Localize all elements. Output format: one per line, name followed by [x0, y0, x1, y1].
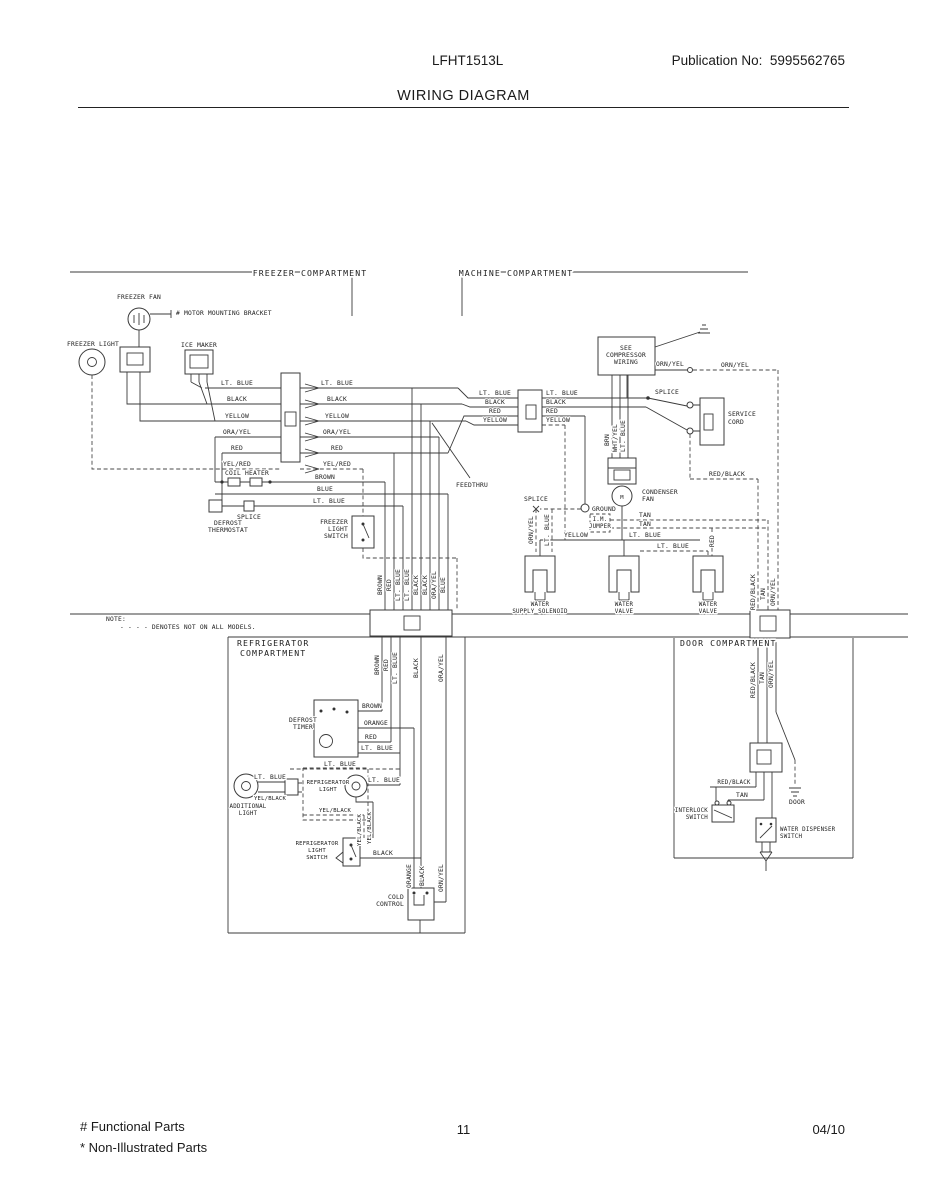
- diagram-label: RED/BLACK: [717, 780, 751, 786]
- door-feedthru-connector: [750, 610, 790, 638]
- diagram-label: DEFROST: [289, 717, 317, 724]
- diagram-label: LT. BLUE: [368, 777, 400, 784]
- diagram-label: DEFROST: [214, 520, 242, 527]
- diagram-label: ORN/YEL: [721, 362, 749, 369]
- diagram-label: ORANGE: [364, 720, 388, 727]
- diagram-label: BLACK: [373, 850, 393, 857]
- diagram-label: WATER: [615, 602, 634, 608]
- diagram-label: LT. BLUE: [392, 652, 399, 684]
- diagram-label: LT. BLUE: [361, 745, 393, 752]
- wiring-diagram: FREEZER COMPARTMENTMACHINE COMPARTMENTRE…: [0, 0, 927, 1200]
- diagram-label: BLACK: [422, 575, 429, 595]
- diagram-label: CORD: [728, 419, 744, 426]
- diagram-label: YEL/BLACK: [319, 808, 352, 814]
- interlock-switch-symbol: [712, 805, 734, 822]
- diagram-label: RED/BLACK: [709, 471, 745, 478]
- diagram-label: SUPPLY SOLENOID: [512, 609, 568, 615]
- diagram-label: LT. BLUE: [395, 569, 402, 601]
- light-connector: [285, 779, 298, 795]
- diagram-label: FREEZER: [320, 519, 348, 526]
- diagram-label: SERVICE: [728, 411, 756, 418]
- diagram-label: YELLOW: [483, 417, 507, 424]
- diagram-label: LIGHT: [319, 787, 337, 793]
- diagram-label: TAN: [759, 672, 766, 684]
- water-supply-solenoid-symbol: [525, 556, 555, 592]
- diagram-label: # MOTOR MOUNTING BRACKET: [176, 310, 272, 317]
- diagram-label: FREEZER LIGHT: [67, 341, 119, 348]
- diagram-label: ORN/YEL: [656, 361, 684, 368]
- diagram-label: LT. BLUE: [479, 390, 511, 397]
- diagram-label: RED/BLACK: [750, 662, 757, 698]
- diagram-label: LT. BLUE: [324, 761, 356, 768]
- diagram-label: ORA/YEL: [431, 571, 438, 599]
- diagram-label: DOOR: [789, 799, 805, 806]
- fan-connector-box: [120, 347, 150, 372]
- freezer-light-symbol: [79, 349, 105, 375]
- diagram-label: LIGHT: [328, 526, 348, 533]
- diagram-label: BRN: [604, 434, 611, 446]
- diagram-label: MACHINE COMPARTMENT: [459, 268, 574, 278]
- diagram-label: LIGHT: [239, 811, 258, 817]
- diagram-label: BLACK: [413, 575, 420, 595]
- diagram-label: LT. BLUE: [404, 569, 411, 601]
- diagram-label: REFRIGERATOR: [296, 841, 339, 847]
- diagram-label: YELLOW: [564, 532, 588, 539]
- diagram-label: YEL/RED: [323, 461, 351, 468]
- diagram-label: LT. BLUE: [221, 380, 253, 387]
- diagram-label: BLACK: [413, 658, 420, 678]
- diagram-label: SPLICE: [655, 389, 679, 396]
- diagram-label: FREEZER COMPARTMENT: [253, 268, 368, 278]
- diagram-label: COIL HEATER: [225, 470, 269, 477]
- diagram-label: YEL/BLACK: [254, 796, 287, 802]
- diagram-label: RED: [386, 579, 393, 591]
- diagram-label: FREEZER FAN: [117, 294, 161, 301]
- diagram-label: BLACK: [546, 399, 566, 406]
- diagram-label: SWITCH: [780, 834, 802, 840]
- diagram-label: RED: [383, 659, 390, 671]
- diagram-label: VALVE: [615, 609, 634, 615]
- diagram-label: ORA/YEL: [323, 429, 351, 436]
- refrigerator-light-symbol: [345, 775, 367, 797]
- footer-date: 04/10: [812, 1122, 845, 1137]
- diagram-label: THERMOSTAT: [208, 527, 248, 534]
- diagram-label: BLUE: [440, 577, 447, 593]
- diagram-label: ORN/YEL: [770, 578, 777, 606]
- defrost-timer-symbol: [314, 700, 358, 757]
- diagram-label: RED/BLACK: [750, 574, 757, 610]
- diagram-label: INTERLOCK: [675, 808, 709, 814]
- diagram-label: SWITCH: [306, 855, 327, 861]
- diagram-label: BLACK: [485, 399, 505, 406]
- ground-symbol: [581, 504, 589, 512]
- diagram-label: LT. BLUE: [546, 390, 578, 397]
- splice-dot: [646, 396, 650, 400]
- coil-heater-element: [228, 478, 240, 486]
- diagram-label: LT. BLUE: [620, 420, 627, 452]
- diagram-label: BROWN: [362, 703, 382, 710]
- diagram-label: RED: [365, 734, 377, 741]
- diagram-label: M: [620, 495, 624, 501]
- diagram-label: JUMPER: [589, 524, 611, 530]
- door-harness-connector: [750, 743, 782, 772]
- diagram-label: YELLOW: [546, 417, 570, 424]
- diagram-label: TAN: [736, 792, 748, 799]
- water-dispenser-switch-symbol: [756, 818, 776, 842]
- diagram-label: YELLOW: [325, 413, 349, 420]
- defrost-thermostat-symbol: [209, 500, 222, 512]
- diagram-label: BLACK: [419, 866, 426, 886]
- diagram-label: ICE MAKER: [181, 342, 217, 349]
- cold-control-symbol: [408, 888, 434, 920]
- freezer-light-switch-symbol: [352, 516, 374, 548]
- diagram-label: DOOR COMPARTMENT: [680, 638, 776, 648]
- diagram-label: WATER: [531, 602, 550, 608]
- diagram-label: RED: [546, 408, 558, 415]
- cabinet-feedthru-connector: [370, 610, 452, 636]
- diagram-label: BROWN: [374, 655, 381, 675]
- diagram-label: RED: [331, 445, 343, 452]
- manual-page: LFHT1513L Publication No: 5995562765 WIR…: [0, 0, 927, 1200]
- diagram-label: FAN: [642, 496, 654, 503]
- freezer-feedthru-connector: [281, 373, 300, 462]
- diagram-label: VALVE: [699, 609, 718, 615]
- diagram-label: WATER: [699, 602, 718, 608]
- footer-page-number: 11: [0, 1122, 927, 1137]
- diagram-label: COLD: [388, 894, 404, 901]
- diagram-label: SEE: [620, 345, 632, 352]
- diagram-label: TAN: [639, 521, 651, 528]
- diagram-label: YEL/BLACK: [367, 812, 373, 845]
- diagram-label: LT. BLUE: [313, 498, 345, 505]
- diagram-label: SWITCH: [324, 533, 348, 540]
- water-valve-symbol: [693, 556, 723, 592]
- diagram-label: YEL/RED: [223, 461, 251, 468]
- diagram-label: RED: [709, 535, 716, 547]
- diagram-label: WIRING: [614, 359, 638, 366]
- ice-maker-plug: [185, 350, 213, 374]
- diagram-label: BLACK: [227, 396, 247, 403]
- diagram-label: TAN: [639, 512, 651, 519]
- diagram-label: BROWN: [315, 474, 335, 481]
- diagram-label: LT. BLUE: [321, 380, 353, 387]
- diagram-label: COMPARTMENT: [240, 648, 306, 658]
- diagram-label: LT. BLUE: [544, 514, 551, 546]
- coil-heater-element: [250, 478, 262, 486]
- diagram-label: WHT/YEL: [612, 424, 619, 452]
- diagram-label: RED: [489, 408, 501, 415]
- splice-symbol: [244, 501, 254, 511]
- footer-non-illustrated-parts: * Non-Illustrated Parts: [80, 1140, 207, 1155]
- diagram-label: ADDITIONAL: [230, 804, 267, 810]
- diagram-label: YELLOW: [225, 413, 249, 420]
- diagram-label: REFRIGERATOR: [237, 638, 309, 648]
- diagram-label: ORN/YEL: [528, 516, 535, 544]
- diagram-label: RED: [231, 445, 243, 452]
- diagram-label: COMPRESSOR: [606, 352, 646, 359]
- diagram-label: LT. BLUE: [254, 774, 286, 781]
- diagram-label: CONDENSER: [642, 489, 678, 496]
- diagram-label: ORN/YEL: [768, 660, 775, 688]
- diagram-label: LT. BLUE: [657, 543, 689, 550]
- diagram-label: I.M.: [593, 517, 608, 523]
- machine-connector: [518, 390, 542, 432]
- diagram-label: LIGHT: [308, 848, 326, 854]
- diagram-label: SWITCH: [686, 815, 708, 821]
- diagram-label: TAN: [760, 588, 767, 600]
- diagram-label: NOTE:: [106, 616, 126, 623]
- diagram-label: ORA/YEL: [438, 654, 445, 682]
- diagram-label: TIMER: [293, 724, 313, 731]
- diagram-label: LT. BLUE: [629, 532, 661, 539]
- diagram-label: YEL/BLACK: [357, 814, 363, 847]
- freezer-compartment-wiring: [79, 308, 518, 610]
- diagram-label: WATER DISPENSER: [780, 827, 836, 833]
- diagram-label: CONTROL: [376, 901, 404, 908]
- diagram-label: ORN/YEL: [438, 864, 445, 892]
- diagram-label: REFRIGERATOR: [307, 780, 350, 786]
- diagram-label: GROUND: [592, 506, 616, 513]
- diagram-label: ORANGE: [406, 864, 413, 888]
- diagram-label: ORA/YEL: [223, 429, 251, 436]
- diagram-label: FEEDTHRU: [456, 482, 488, 489]
- water-valve-symbol: [609, 556, 639, 592]
- diagram-label: BROWN: [377, 575, 384, 595]
- diagram-label: BLACK: [327, 396, 347, 403]
- diagram-label: SPLICE: [524, 496, 548, 503]
- diagram-label: - - - - DENOTES NOT ON ALL MODELS.: [120, 624, 256, 631]
- diagram-label: BLUE: [317, 486, 333, 493]
